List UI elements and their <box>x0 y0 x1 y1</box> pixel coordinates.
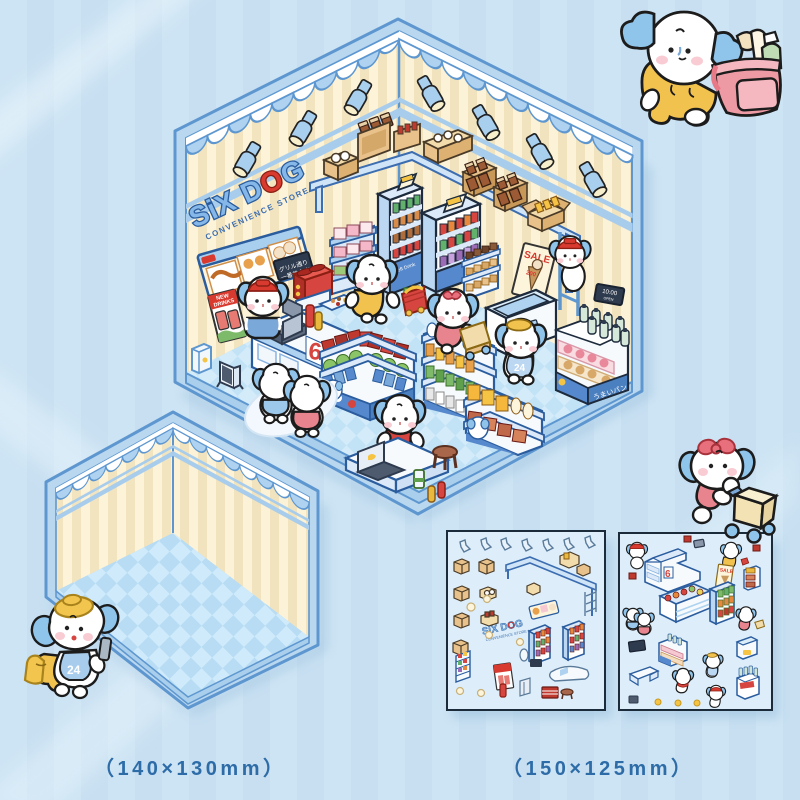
svg-text:24: 24 <box>514 363 526 374</box>
svg-text:6: 6 <box>665 569 671 580</box>
svg-text:24: 24 <box>67 663 81 677</box>
